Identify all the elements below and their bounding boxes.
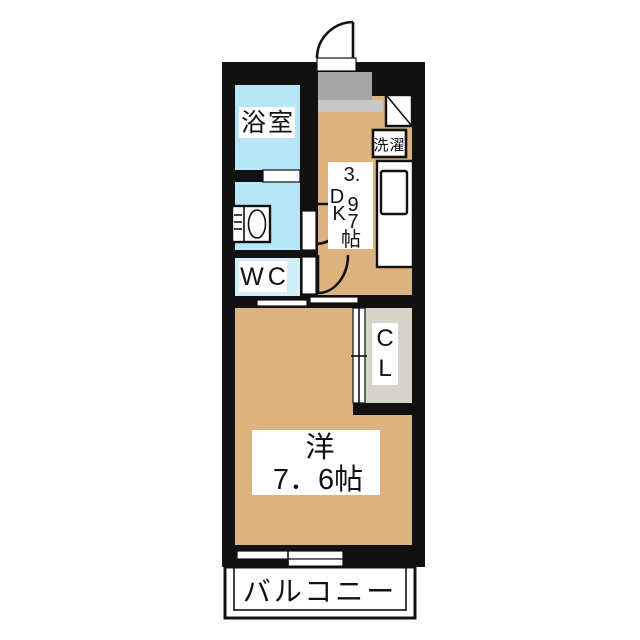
genkan-step: [318, 100, 383, 112]
kitchen-counter-icon: [377, 161, 413, 267]
closet-label-c: C: [376, 325, 393, 352]
entrance-sill: [317, 58, 356, 71]
wc-door-opening: [302, 257, 316, 294]
closet-door-icon: [351, 308, 367, 403]
hall-divider-opening-left: [257, 300, 307, 306]
bathroom-door-opening: [263, 170, 300, 182]
bathroom-label: 浴室: [241, 109, 295, 137]
closet-label-l: L: [378, 355, 391, 382]
dk-size-jo: 帖: [341, 228, 361, 251]
washbasin-icon: [232, 206, 270, 242]
closet-bottom-wall: [353, 403, 412, 415]
floor-plan: 洗濯 C L 浴室 WC: [0, 0, 640, 640]
western-room-size: 7．6帖: [273, 463, 363, 496]
wc-label: WC: [240, 263, 290, 291]
shoe-cabinet-icon: [386, 95, 412, 126]
balcony-label: バルコニー: [243, 576, 397, 607]
washroom-door-opening: [302, 211, 316, 250]
laundry-label: 洗濯: [373, 137, 405, 154]
dk-size-digit-3: 3.: [344, 164, 361, 186]
hall-divider-opening-right: [310, 297, 358, 303]
western-room-label: 洋: [305, 431, 334, 464]
genkan-floor: [318, 72, 372, 100]
dk-letter-k: K: [332, 203, 346, 225]
